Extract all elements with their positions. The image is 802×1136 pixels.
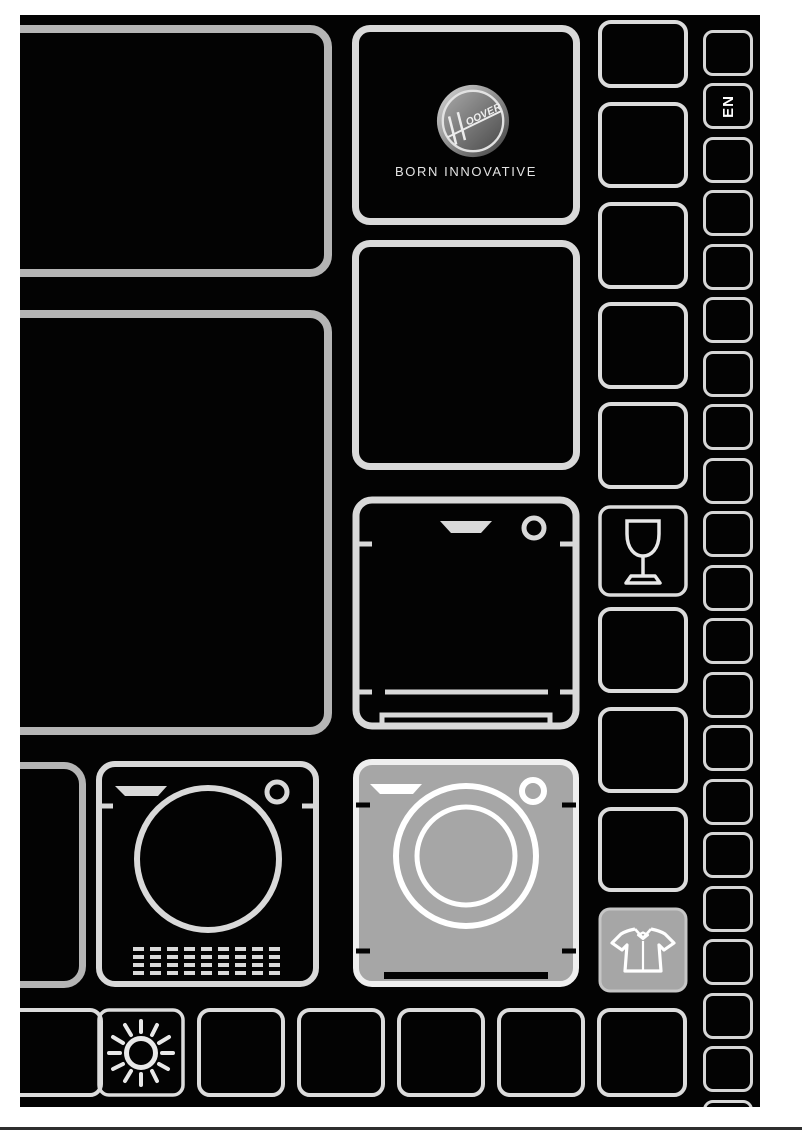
panel-middle-empty — [352, 240, 580, 470]
grid-cell — [703, 244, 753, 290]
manual-cover-page: OOVER BORN INNOVATIVE — [20, 15, 760, 1107]
grid-cell — [703, 297, 753, 343]
grid-cell — [598, 202, 688, 289]
grid-cell — [703, 458, 753, 504]
grid-cell — [703, 1046, 753, 1092]
grid-cell — [703, 672, 753, 718]
grid-cell — [197, 1008, 285, 1097]
grid-cell — [598, 102, 688, 188]
grid-cell — [397, 1008, 485, 1097]
language-tab-label: EN — [720, 95, 737, 118]
grid-cell — [598, 707, 688, 793]
shirt-icon — [598, 907, 688, 993]
panel-left-narrow — [20, 762, 86, 988]
grid-cell — [703, 565, 753, 611]
hoover-logo: OOVER — [434, 82, 512, 160]
grid-cell — [703, 30, 753, 76]
wine-glass-icon — [598, 505, 688, 597]
grid-cell — [597, 1008, 687, 1097]
grid-cell — [598, 402, 688, 489]
grid-cell — [703, 511, 753, 557]
grid-cell — [703, 351, 753, 397]
grid-cell — [703, 832, 753, 878]
page-bottom-separator — [0, 1127, 802, 1130]
grid-cell — [703, 137, 753, 183]
grid-cell — [703, 404, 753, 450]
brand-panel: OOVER BORN INNOVATIVE — [352, 25, 580, 225]
tumble-dryer-icon — [95, 760, 320, 988]
language-tab-en: EN — [703, 83, 753, 129]
grid-cell — [20, 1008, 103, 1097]
washing-machine-icon — [352, 758, 580, 988]
grid-cell — [703, 939, 753, 985]
panel-top-left — [20, 25, 332, 277]
panel-left-large — [20, 310, 332, 735]
grid-cell — [703, 993, 753, 1039]
dishwasher-icon — [352, 496, 580, 730]
grid-cell — [703, 618, 753, 664]
grid-cell — [598, 302, 688, 389]
grid-cell — [598, 607, 688, 693]
grid-cell — [703, 725, 753, 771]
sun-icon — [97, 1008, 185, 1097]
grid-cell — [703, 779, 753, 825]
grid-cell — [703, 190, 753, 236]
grid-cell — [703, 886, 753, 932]
grid-cell — [598, 807, 688, 892]
brand-tagline: BORN INNOVATIVE — [359, 164, 573, 179]
grid-cell — [598, 20, 688, 88]
grid-cell — [497, 1008, 585, 1097]
grid-cell — [297, 1008, 385, 1097]
grid-cell — [703, 1100, 753, 1107]
